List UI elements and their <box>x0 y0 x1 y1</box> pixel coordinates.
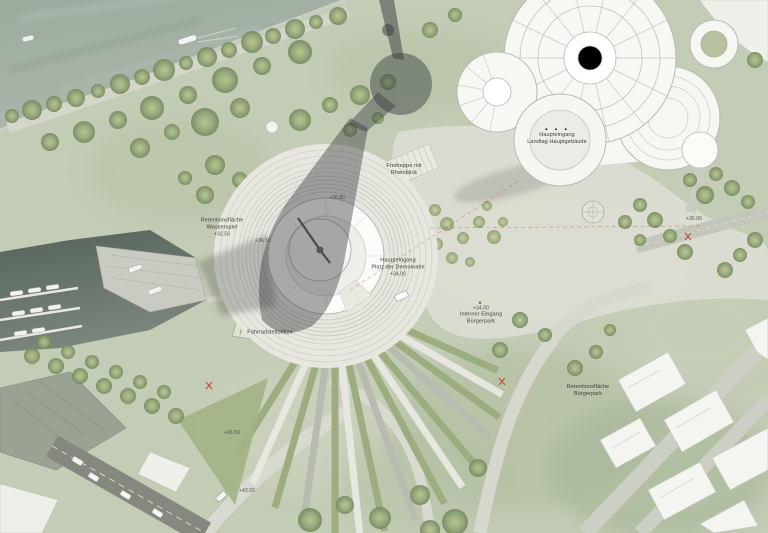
label-interner-eingang: ▲ +34.00 Interner Eingang Bürgerpark <box>460 300 502 327</box>
label-spot-south-path: +43.50 <box>239 488 255 495</box>
label-spot-right-road: +35.00 <box>686 216 702 223</box>
fountain <box>266 121 278 133</box>
label-spot-plaza-top: +36.80 <box>329 195 345 202</box>
label-haupteingang-platz: Haupteingang Platz der Demokratie +34.00 <box>371 258 424 279</box>
southwest-block <box>0 372 227 533</box>
label-freitreppe: Freitreppe mit Rheinblick <box>386 163 421 177</box>
label-spot-plaza-inner: +36.50 <box>255 238 271 245</box>
label-retentionsflaeche-buergerpark: Retentionsfläche Bürgerpark <box>567 384 610 398</box>
label-haupteingang-landtag: ▲ ▲ ▲ Haupteingang Landtag Hauptgebäude <box>527 126 587 146</box>
label-fahrradstellplaetze: Fahrradstellplätze <box>247 329 293 336</box>
label-retentionsflaeche-wasserspiel: Retentionsfläche Wasserspiel +32.50 <box>201 218 244 239</box>
marina <box>0 230 206 352</box>
paving-emblem <box>582 201 604 223</box>
site-plan: Retentionsfläche Wasserspiel +32.50 +36.… <box>0 0 768 533</box>
label-spot-west-path: +36.50 <box>224 430 240 437</box>
